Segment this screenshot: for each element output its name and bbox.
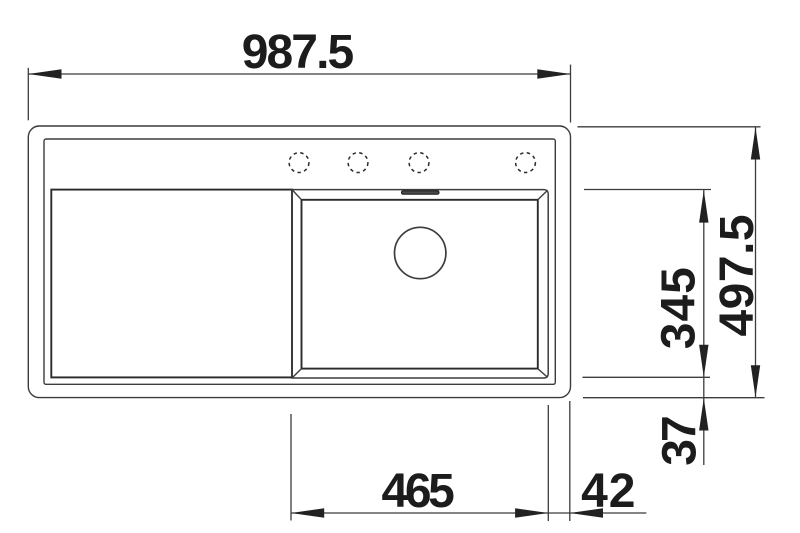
svg-text:465: 465	[382, 465, 455, 518]
svg-text:345: 345	[653, 266, 706, 349]
svg-text:497.5: 497.5	[711, 214, 764, 337]
svg-text:42: 42	[581, 465, 636, 518]
svg-text:987.5: 987.5	[242, 26, 354, 79]
svg-text:37: 37	[654, 417, 707, 466]
